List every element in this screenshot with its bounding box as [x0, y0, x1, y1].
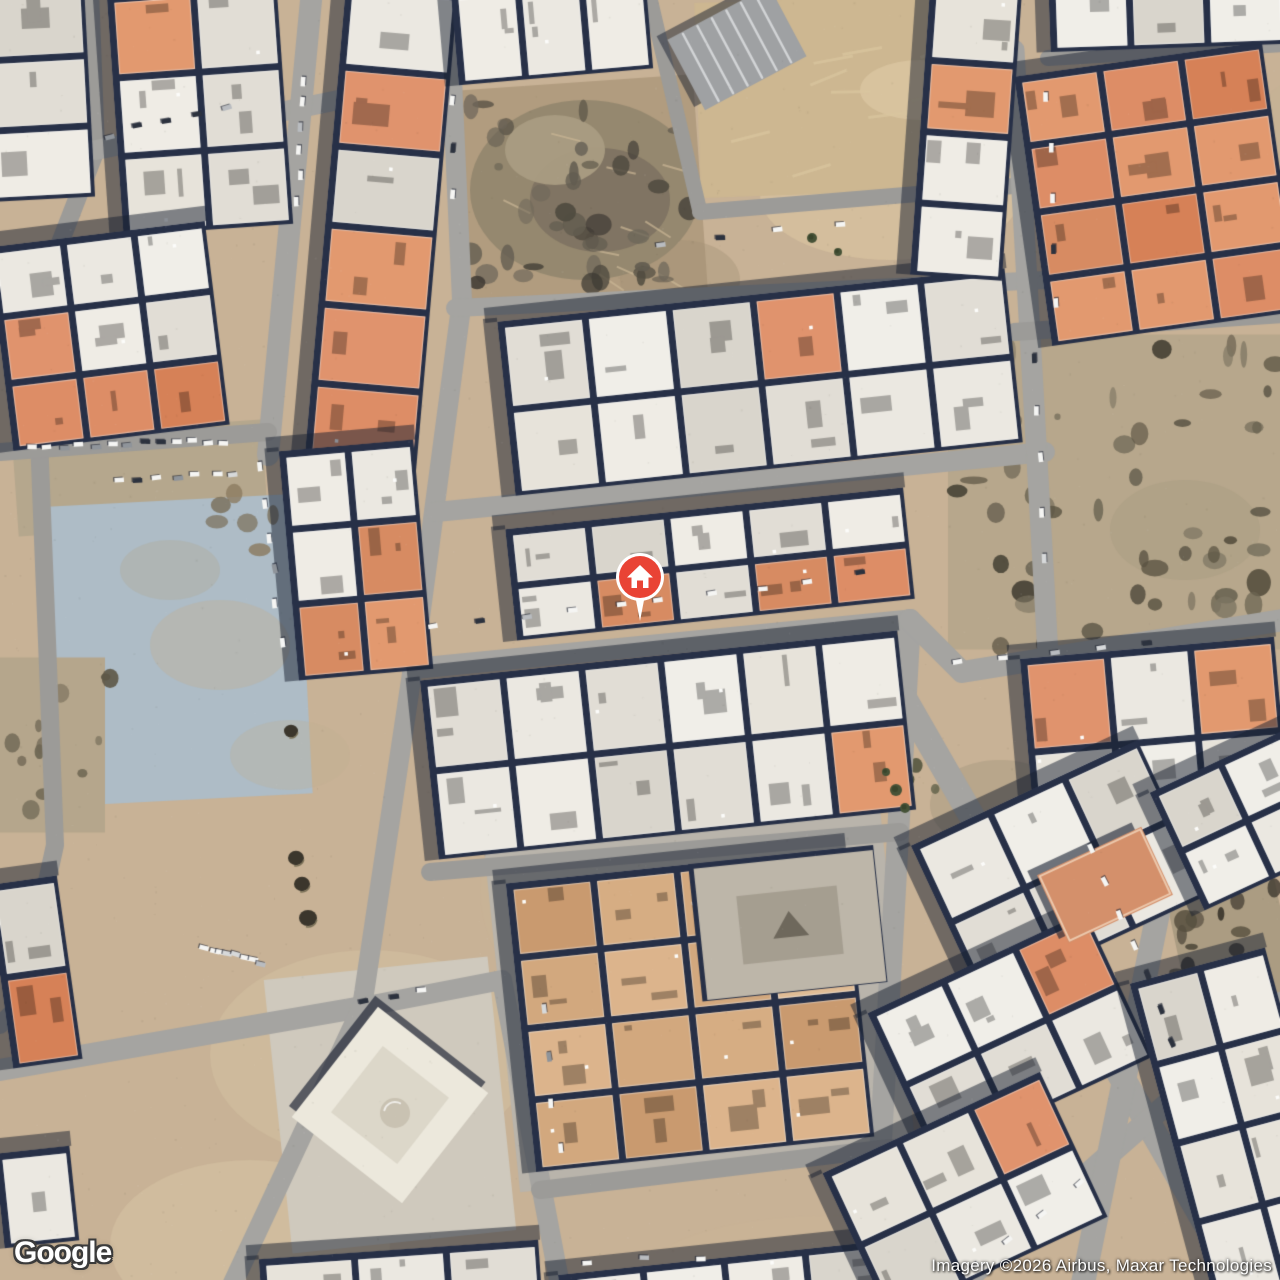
map-viewport: Google Imagery ©2026 Airbus, Maxar Techn… — [0, 0, 1280, 1280]
location-pin[interactable] — [608, 547, 672, 625]
google-logo[interactable]: Google — [14, 1236, 111, 1270]
imagery-attribution: Imagery ©2026 Airbus, Maxar Technologies — [931, 1256, 1272, 1276]
satellite-imagery — [0, 0, 1280, 1280]
